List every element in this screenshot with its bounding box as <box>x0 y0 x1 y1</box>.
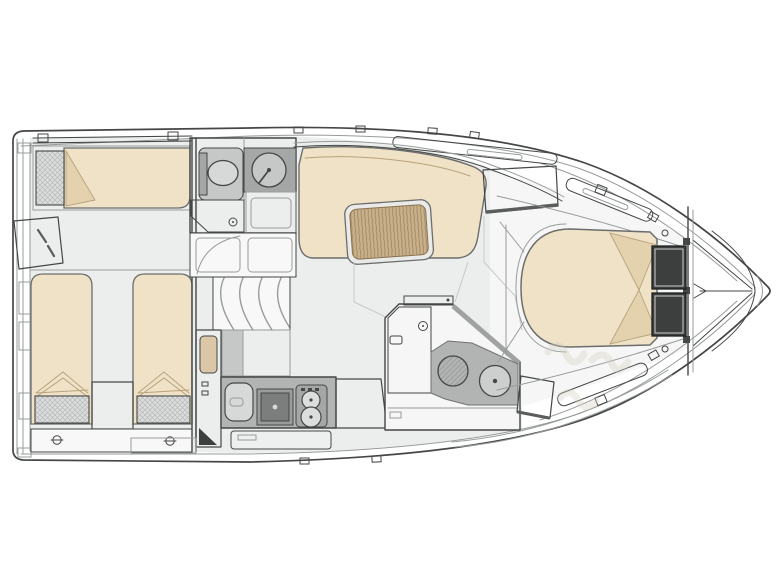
aft-berth-pillow <box>36 151 64 205</box>
toilet <box>199 148 243 200</box>
bow-pillow-upper <box>652 246 686 289</box>
yacht-floor-plan <box>0 0 779 584</box>
berth-pillow <box>137 396 190 423</box>
mid-berth-right <box>133 274 192 424</box>
aft-berth <box>33 146 192 210</box>
stern-bench <box>31 429 192 452</box>
galley-burners <box>296 385 327 427</box>
island-berth <box>516 224 657 352</box>
dinette-table <box>344 199 434 265</box>
mid-berth-left <box>31 274 92 424</box>
galley-sink <box>225 383 253 421</box>
bow-pillow-lower <box>652 293 686 336</box>
day-head-basin <box>438 356 468 386</box>
galley-cooktop <box>257 389 293 425</box>
bulkhead <box>683 207 693 375</box>
transom-details <box>17 139 31 457</box>
landing-cabinets <box>190 233 296 277</box>
berth-pillow <box>35 396 89 423</box>
galley-counter <box>221 377 336 428</box>
floor-plan-drawing <box>0 0 779 584</box>
